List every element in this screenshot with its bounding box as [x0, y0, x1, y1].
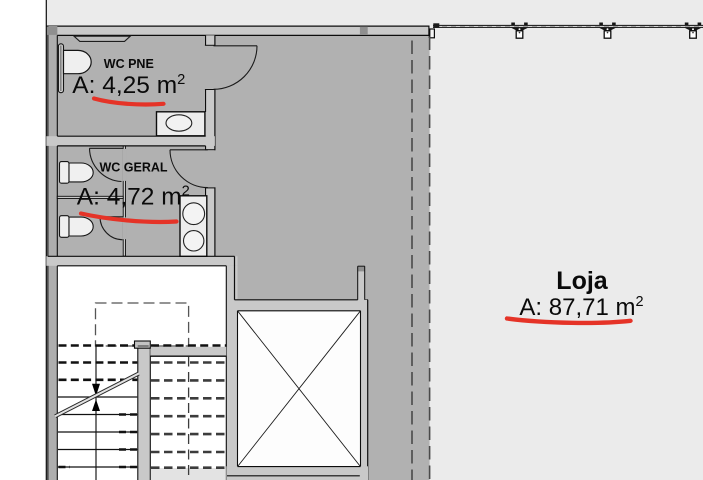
- svg-text:WC PNE: WC PNE: [104, 57, 154, 71]
- svg-text:A: 87,71 m2: A: 87,71 m2: [519, 294, 643, 321]
- svg-text:Loja: Loja: [556, 267, 608, 295]
- svg-text:WC GERAL: WC GERAL: [99, 161, 167, 175]
- svg-text:A: 4,72 m2: A: 4,72 m2: [77, 184, 190, 211]
- svg-text:A: 4,25 m2: A: 4,25 m2: [72, 72, 185, 99]
